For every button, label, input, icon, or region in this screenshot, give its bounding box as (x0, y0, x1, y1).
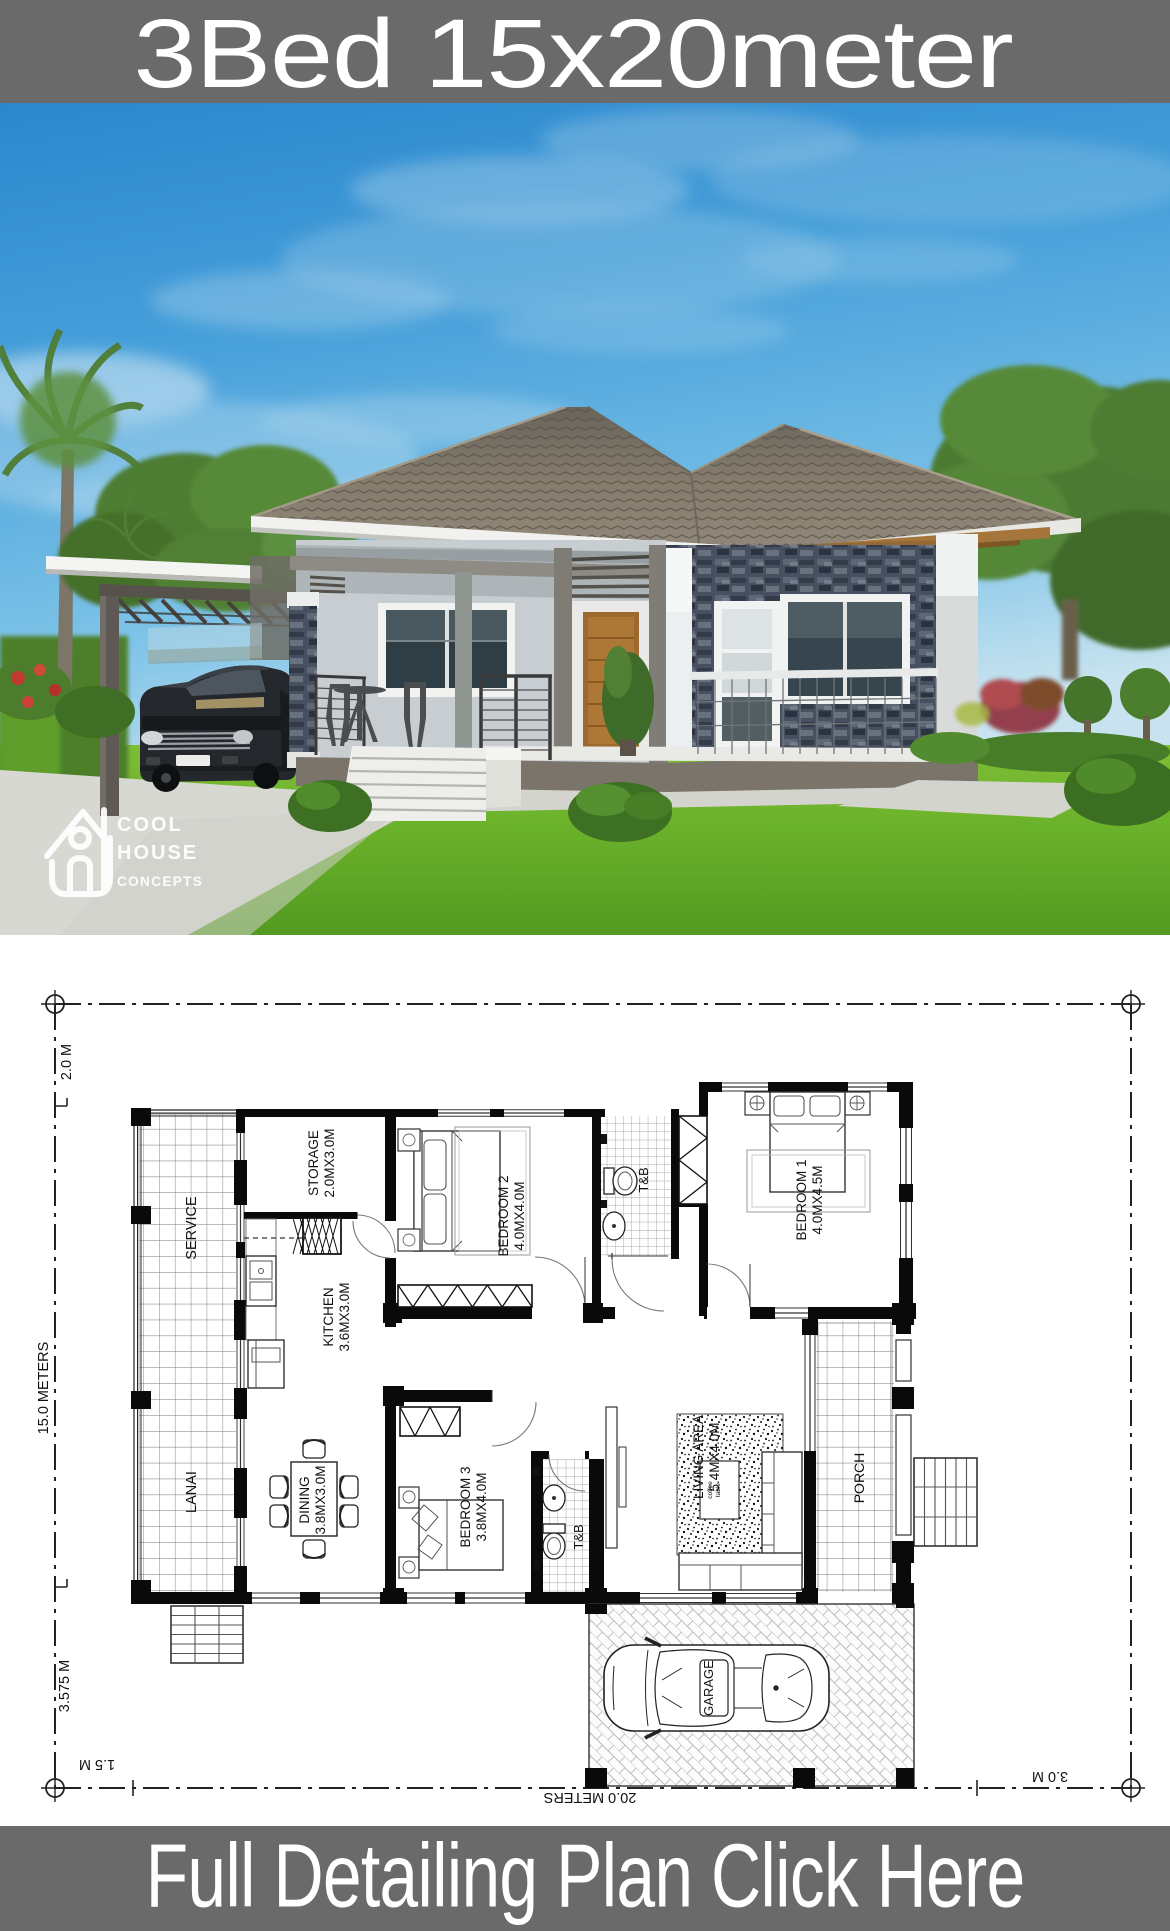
svg-text:BEDROOM 3: BEDROOM 3 (458, 1466, 473, 1547)
svg-text:HOUSE: HOUSE (117, 842, 198, 864)
svg-text:LANAI: LANAI (184, 1471, 200, 1513)
svg-text:4.0MX4.0M: 4.0MX4.0M (512, 1181, 527, 1250)
svg-text:SERVICE: SERVICE (184, 1196, 200, 1260)
svg-text:T&B: T&B (636, 1167, 651, 1192)
svg-text:BEDROOM 2: BEDROOM 2 (496, 1175, 511, 1256)
svg-text:3.8MX4.0M: 3.8MX4.0M (474, 1472, 489, 1541)
svg-text:2.0MX3.0M: 2.0MX3.0M (322, 1128, 337, 1197)
svg-text:4.0MX4.5M: 4.0MX4.5M (810, 1165, 825, 1234)
svg-text:T&B: T&B (571, 1524, 586, 1549)
svg-text:5.4MX4.0M: 5.4MX4.0M (707, 1422, 722, 1491)
svg-text:3.6MX3.0M: 3.6MX3.0M (337, 1282, 352, 1351)
svg-text:CONCEPTS: CONCEPTS (117, 874, 203, 889)
svg-text:3.575 M: 3.575 M (57, 1660, 73, 1712)
svg-text:DINING: DINING (297, 1476, 312, 1523)
svg-text:15.0 METERS: 15.0 METERS (36, 1342, 52, 1435)
svg-text:2.0 M: 2.0 M (59, 1044, 75, 1080)
svg-text:PORCH: PORCH (851, 1453, 867, 1504)
svg-text:LIVING AREA: LIVING AREA (691, 1415, 706, 1499)
svg-text:GARAGE: GARAGE (701, 1660, 716, 1716)
svg-text:3.8MX3.0M: 3.8MX3.0M (313, 1465, 328, 1534)
svg-text:3.0 M: 3.0 M (1032, 1768, 1068, 1784)
svg-text:COOL: COOL (117, 814, 183, 836)
svg-text:KITCHEN: KITCHEN (321, 1287, 336, 1346)
svg-text:20.0 METERS: 20.0 METERS (544, 1789, 637, 1805)
svg-text:STORAGE: STORAGE (306, 1130, 321, 1196)
svg-text:1.5 M: 1.5 M (79, 1756, 115, 1772)
svg-text:BEDROOM 1: BEDROOM 1 (794, 1159, 809, 1240)
